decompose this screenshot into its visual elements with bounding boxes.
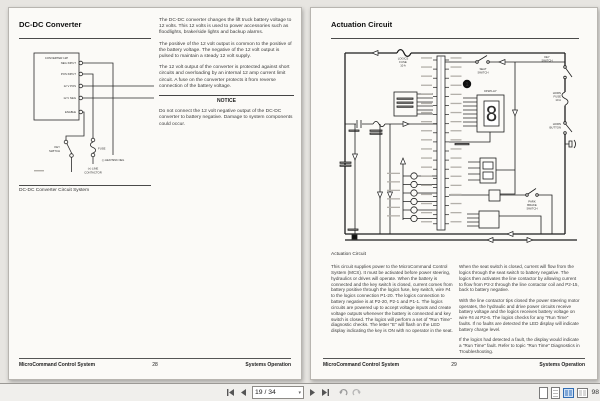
page-number-input[interactable]: 19 / 34 ▾ — [252, 386, 304, 399]
first-page-icon[interactable] — [226, 388, 235, 397]
manual-page-right: Actuation Circuit — [310, 7, 598, 380]
page-footer: MicroCommand Control System 29 Systems O… — [323, 362, 585, 370]
page-indicator-value: 19 / 34 — [255, 389, 296, 396]
layout-two-up-icon[interactable] — [563, 388, 574, 398]
notice-block: NOTICE Do not connect the 12 volt negati… — [159, 95, 294, 128]
last-page-icon[interactable] — [321, 388, 330, 397]
flow-arrow — [527, 238, 533, 243]
flow-arrow — [353, 154, 358, 160]
key-switch-blade — [67, 144, 72, 155]
terminal-label: ENABLE — [65, 110, 76, 114]
svg-text:SWITCH: SWITCH — [541, 59, 552, 63]
footer-rule — [323, 358, 585, 359]
pin-labels-left — [421, 57, 432, 222]
footer-section: Systems Operation — [245, 362, 291, 368]
page-title: Actuation Circuit — [331, 20, 392, 29]
page-footer: MicroCommand Control System 28 Systems O… — [19, 362, 291, 370]
fuse-symbol — [90, 142, 95, 153]
pdf-viewer-window: { "statusbar": { "page_indicator": "19 /… — [0, 0, 600, 400]
flow-arrow — [487, 238, 493, 243]
fuse-label: FUSE — [98, 147, 106, 151]
horn-symbol — [565, 140, 576, 148]
terminal-label: POS INPUT — [61, 72, 76, 76]
footer-section: Systems Operation — [539, 362, 585, 368]
title-rule — [19, 38, 151, 39]
terminal-label: NEG INPUT — [61, 61, 77, 65]
key-switch-contact-bottom — [70, 154, 74, 158]
paragraph: The DC-DC converter changes the lift tru… — [159, 18, 294, 37]
next-page-icon[interactable] — [308, 388, 317, 397]
park-brake-blade — [528, 189, 536, 195]
accelerator-pins — [467, 214, 479, 226]
converter-box-title: CONVERTER 12P — [45, 56, 68, 60]
body-text-column: The DC-DC converter changes the lift tru… — [159, 18, 294, 133]
horn-button-blade — [566, 124, 572, 132]
manual-page-left: DC-DC Converter CONVERTER 12P NEG INPUT — [8, 7, 302, 380]
footer-rule — [19, 358, 291, 359]
paragraph: With the line contactor tips closed the … — [459, 298, 581, 333]
callout-number: 1 — [465, 82, 468, 88]
paragraph: The positive of the 12 volt output is co… — [159, 42, 294, 61]
relay-pins — [468, 162, 480, 180]
accelerator-box — [479, 211, 499, 228]
horn-fuse-symbol — [562, 92, 568, 105]
key-switch-blade — [566, 68, 572, 77]
flow-arrow — [378, 192, 383, 198]
display-label: DISPLAY — [484, 89, 496, 93]
diagram-caption: Actuation Circuit — [331, 252, 366, 257]
enable-wire — [66, 112, 84, 140]
paragraph: The 12 volt output of the converter is p… — [159, 65, 294, 90]
svg-text:10 A: 10 A — [400, 64, 406, 68]
flow-arrow — [513, 110, 518, 116]
notice-heading: NOTICE — [159, 98, 294, 104]
sensor-box — [394, 92, 417, 116]
svg-text:SWITCH: SWITCH — [49, 149, 60, 153]
branch-wires — [355, 124, 390, 234]
figure-code-smudge — [34, 170, 44, 171]
terminal-label: 12 V NEG — [63, 96, 76, 100]
key-switch-contact-top — [64, 140, 68, 144]
page-title: DC-DC Converter — [19, 20, 81, 29]
next-view-icon[interactable] — [352, 388, 361, 397]
prev-page-icon[interactable] — [239, 388, 248, 397]
flow-arrow — [388, 192, 393, 198]
body-text-column-1: This circuit supplies power to the Micro… — [331, 264, 453, 339]
seat-switch-box — [489, 190, 500, 201]
neg-input-wire — [83, 63, 113, 155]
flow-arrow — [372, 51, 378, 56]
view-layout-controls: 98 — [539, 386, 599, 399]
paragraph: When the seat switch is closed, current … — [459, 264, 581, 293]
layout-two-up-continuous-icon[interactable] — [577, 388, 588, 398]
display-digit: 8 — [485, 102, 497, 126]
paragraph: This circuit supplies power to the Micro… — [331, 264, 453, 334]
viewer-statusbar: 19 / 34 ▾ 98 — [0, 383, 600, 401]
diagram-caption: DC-DC Converter Circuit System — [19, 188, 89, 193]
flow-arrow — [401, 158, 406, 164]
caption-rule — [19, 185, 151, 186]
svg-text:SWITCH: SWITCH — [526, 207, 537, 211]
heatsink-neg-label: (-) HEATSINK NEG — [102, 158, 124, 162]
drive-fuse-symbol — [373, 121, 385, 126]
svg-text:10 A: 10 A — [555, 98, 561, 102]
layout-single-icon[interactable] — [539, 387, 548, 399]
svg-text:BUTTON: BUTTON — [550, 126, 561, 130]
svg-text:SWITCH: SWITCH — [477, 71, 488, 75]
flow-arrow — [507, 232, 513, 237]
pin-labels-right — [451, 57, 462, 222]
dcdc-converter-diagram: CONVERTER 12P NEG INPUT POS INPUT 12 V P… — [21, 48, 156, 180]
logics-fuse-symbol — [397, 50, 411, 57]
flow-arrow — [499, 60, 505, 65]
paragraph: If the logics had detected a fault, the … — [459, 337, 581, 355]
body-text-column-2: When the seat switch is closed, current … — [459, 264, 581, 359]
terminal-label: 12 V POS — [64, 84, 77, 88]
strip-left-pins — [433, 60, 437, 224]
seat-switch-blade — [478, 56, 487, 62]
title-rule — [331, 38, 579, 39]
chevron-down-icon[interactable]: ▾ — [298, 390, 301, 396]
svg-text:CONTACTOR: CONTACTOR — [84, 171, 101, 175]
page-navigation: 19 / 34 ▾ — [226, 386, 361, 399]
flow-arrow — [403, 122, 409, 127]
notice-body: Do not connect the 12 volt negative outp… — [159, 109, 294, 128]
display-pins — [463, 98, 477, 126]
strip-right-pins — [445, 60, 449, 224]
ground-marker — [352, 235, 357, 239]
line-contactor-tips — [357, 120, 361, 128]
zoom-percent-value[interactable]: 98 — [591, 389, 599, 396]
actuation-circuit-diagram: 1 LOGICS FUSE 10 A KEY SWITCH SEAT SWITC… — [337, 44, 581, 246]
layout-continuous-icon[interactable] — [551, 387, 560, 399]
previous-view-icon[interactable] — [339, 388, 348, 397]
